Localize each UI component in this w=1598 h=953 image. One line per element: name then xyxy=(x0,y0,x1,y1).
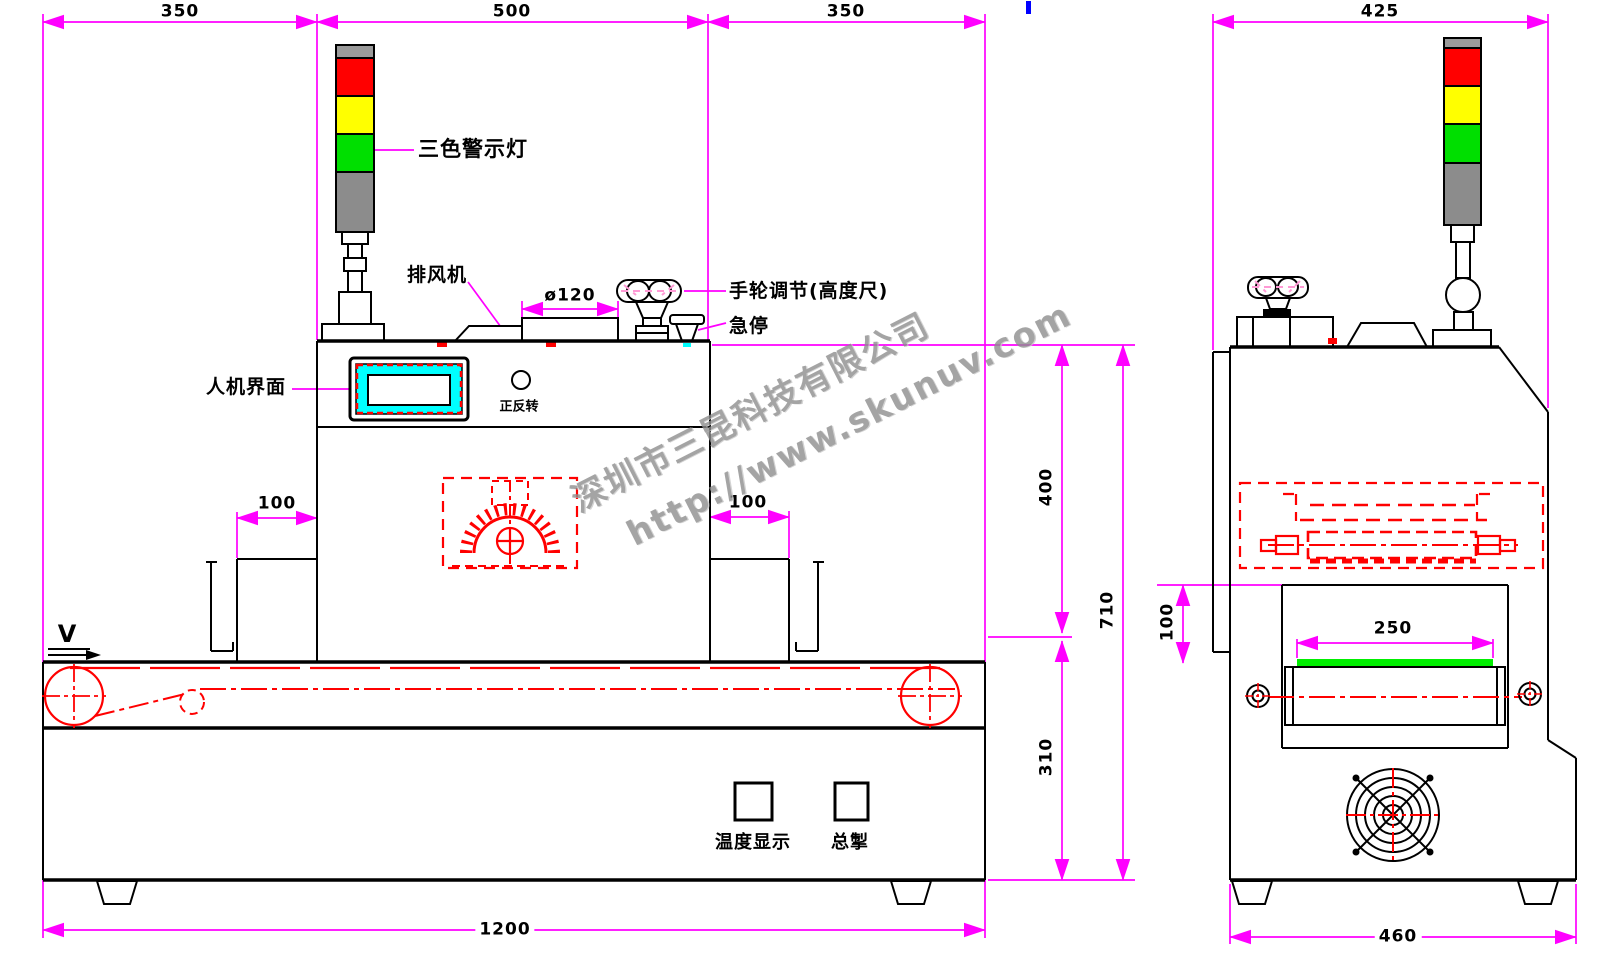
dim-inlet-left: 100 xyxy=(258,496,297,513)
dim-base-width: 460 xyxy=(1375,929,1422,946)
main-switch-window xyxy=(835,783,868,820)
uv-curing-machine-drawing: 350 500 350 ø120 100 100 400 310 710 120… xyxy=(0,0,1598,953)
belt-direction-arrowhead xyxy=(86,650,101,660)
red-tick-left xyxy=(437,342,447,347)
label-main-switch: 总掣 xyxy=(831,834,869,852)
temperature-display-window xyxy=(735,783,772,820)
foot-front-right xyxy=(891,881,931,904)
uv-lamp-symbol xyxy=(443,478,577,568)
label-forward-reverse: 正反转 xyxy=(499,401,538,414)
exhaust-vent-side xyxy=(1347,323,1427,347)
label-tower-light: 三色警示灯 xyxy=(418,139,528,160)
belt-green-edge xyxy=(1297,659,1493,666)
red-tick-right xyxy=(546,342,556,347)
dim-total-height: 710 xyxy=(1100,591,1117,630)
dim-lamp-cover: ø120 xyxy=(544,288,595,305)
label-hmi: 人机界面 xyxy=(206,378,286,397)
tower-light-ball-joint xyxy=(1446,278,1480,312)
conveyor-tunnel-side xyxy=(1268,585,1522,748)
red-tick-side xyxy=(1328,338,1337,344)
dim-base-height: 310 xyxy=(1039,738,1056,777)
bearing-bolt-right xyxy=(1517,681,1543,707)
dim-top-left: 350 xyxy=(161,4,200,21)
label-exhaust-fan: 排风机 xyxy=(407,266,467,285)
hmi-screen xyxy=(350,358,468,420)
label-emergency-stop: 急停 xyxy=(729,317,769,336)
side-view xyxy=(1157,14,1576,944)
label-handwheel: 手轮调节(高度尺) xyxy=(729,282,888,301)
dim-body-height: 400 xyxy=(1039,468,1056,507)
dim-top-center: 500 xyxy=(493,4,532,21)
tower-light-front xyxy=(322,45,384,341)
outlet-rail-right xyxy=(710,559,824,662)
label-temperature-display: 温度显示 xyxy=(715,834,791,852)
bearing-bolt-left xyxy=(1245,683,1271,709)
tower-light-red-segment xyxy=(336,58,374,96)
tower-light-side xyxy=(1433,38,1491,347)
foot-side-left xyxy=(1232,881,1272,904)
foot-side-right xyxy=(1518,881,1558,904)
inlet-rail-left xyxy=(206,559,317,662)
dim-tunnel-height: 100 xyxy=(1160,603,1177,642)
handwheel-front xyxy=(617,280,681,341)
tower-light-green-segment xyxy=(336,134,374,172)
dim-total-length: 1200 xyxy=(475,922,534,939)
tower-light-yellow-segment xyxy=(336,96,374,134)
emergency-stop-button-front xyxy=(670,315,704,341)
dim-top-right: 350 xyxy=(827,4,866,21)
uv-lamp-assembly-side xyxy=(1240,483,1543,568)
dim-side-top-width: 425 xyxy=(1361,4,1400,21)
tension-roller xyxy=(180,690,204,714)
blue-tick xyxy=(1026,1,1031,14)
cyan-tick xyxy=(683,343,691,347)
handwheel-side xyxy=(1237,277,1333,347)
cooling-fan-grille xyxy=(1346,768,1440,862)
label-belt-direction: V xyxy=(58,622,77,646)
forward-reverse-button xyxy=(512,371,530,389)
machine-body-side xyxy=(1213,347,1576,880)
drawing-linework xyxy=(0,0,1598,953)
lamp-cover-plate xyxy=(522,318,618,341)
dimension-lines-side xyxy=(1183,22,1576,937)
dim-belt-width: 250 xyxy=(1374,621,1413,638)
foot-front-left xyxy=(97,881,137,904)
